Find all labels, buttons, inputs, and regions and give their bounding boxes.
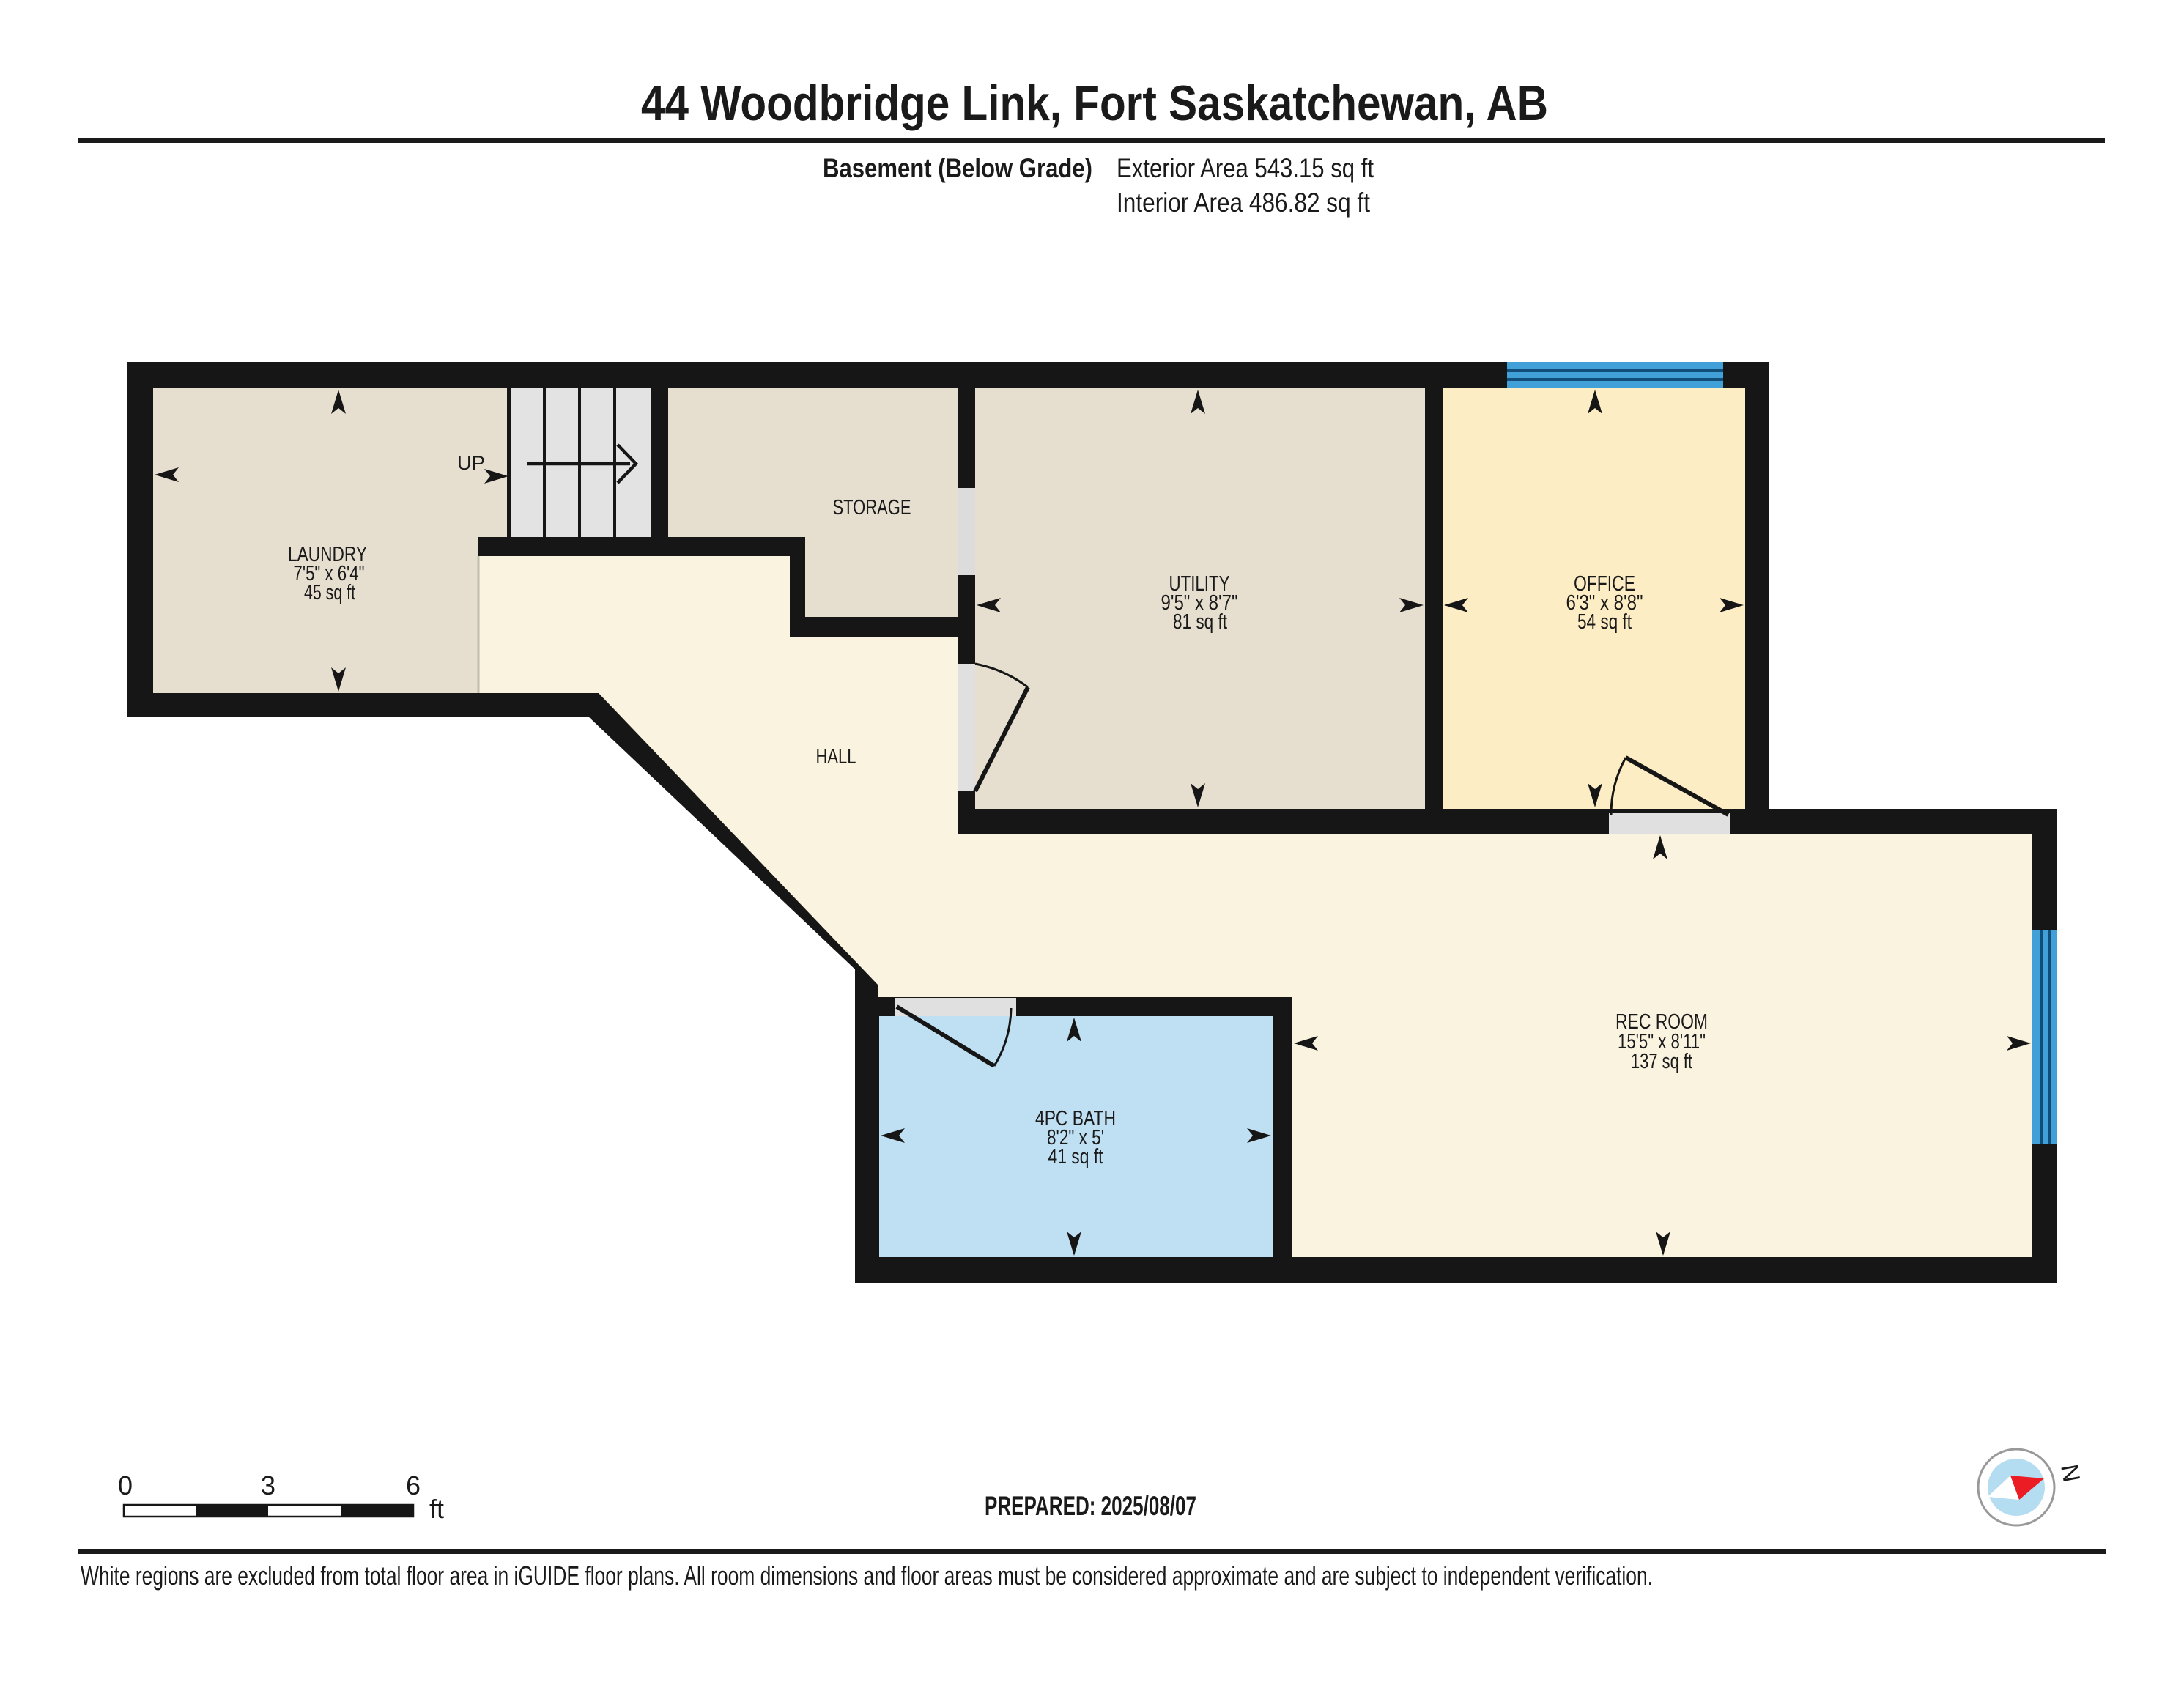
svg-text:45 sq ft: 45 sq ft xyxy=(304,581,355,604)
svg-text:PREPARED: 2025/08/07: PREPARED: 2025/08/07 xyxy=(985,1491,1196,1521)
svg-text:Basement (Below Grade): Basement (Below Grade) xyxy=(823,153,1092,183)
svg-text:81 sq ft: 81 sq ft xyxy=(1173,610,1227,634)
svg-text:ft: ft xyxy=(429,1494,444,1524)
svg-text:44 Woodbridge Link, Fort Saska: 44 Woodbridge Link, Fort Saskatchewan, A… xyxy=(641,75,1548,131)
svg-text:HALL: HALL xyxy=(816,745,856,769)
svg-text:UP: UP xyxy=(457,452,485,474)
svg-text:6: 6 xyxy=(406,1470,421,1500)
svg-text:54 sq ft: 54 sq ft xyxy=(1577,610,1632,634)
svg-text:STORAGE: STORAGE xyxy=(833,496,911,519)
svg-text:0: 0 xyxy=(118,1470,133,1500)
svg-text:41 sq ft: 41 sq ft xyxy=(1048,1145,1103,1169)
svg-text:Interior Area 486.82 sq ft: Interior Area 486.82 sq ft xyxy=(1117,188,1371,218)
svg-text:Exterior Area 543.15 sq ft: Exterior Area 543.15 sq ft xyxy=(1117,153,1374,183)
svg-text:3: 3 xyxy=(261,1470,275,1500)
svg-text:White regions are excluded fro: White regions are excluded from total fl… xyxy=(81,1561,1653,1591)
svg-text:137 sq ft: 137 sq ft xyxy=(1631,1050,1692,1073)
